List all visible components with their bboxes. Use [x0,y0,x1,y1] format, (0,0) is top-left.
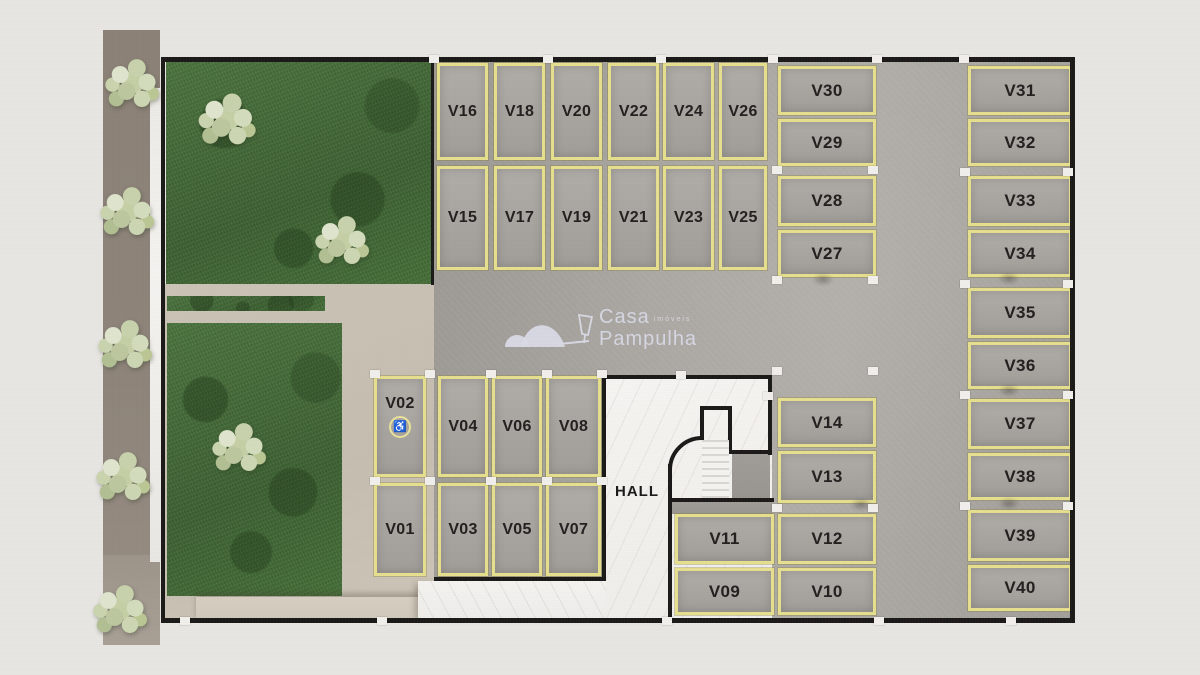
brand-name-line2: Pampulha [599,329,697,349]
stall-label: V02 [385,395,414,413]
stall-label: V14 [811,413,842,433]
stall-label: V12 [811,529,842,549]
parking-stall-v15: V15 [437,166,488,270]
parking-stall-v03: V03 [438,483,488,576]
parking-stall-v26: V26 [719,63,767,160]
shadow [998,497,1020,510]
parking-stall-v39: V39 [968,510,1072,561]
tree-icon [194,88,262,156]
brand-logo-text: Casaimóveis Pampulha [599,307,697,349]
stall-label: V18 [505,103,534,121]
parking-stall-v38: V38 [968,453,1072,500]
stall-label: V39 [1004,526,1035,546]
stall-label: V28 [811,191,842,211]
stall-label: V19 [562,209,591,227]
pillar [1063,280,1073,288]
pillar [772,276,782,284]
stall-label: V36 [1004,356,1035,376]
pillar [772,166,782,174]
shadow [998,272,1020,285]
pillar [597,370,607,378]
stall-label: V27 [811,244,842,264]
pillar [543,55,553,63]
pillar [486,477,496,485]
tree-icon [89,580,153,644]
pillar [542,370,552,378]
hedge-strip [167,296,325,311]
pillar [662,617,672,625]
shadow [812,273,834,286]
parking-stall-v21: V21 [608,166,659,270]
pillar [370,477,380,485]
parking-stall-v28: V28 [778,176,876,226]
stall-label: V23 [674,209,703,227]
stall-label: V21 [619,209,648,227]
stall-label: V40 [1004,578,1035,598]
stall-label: V08 [559,418,588,436]
stall-label: V13 [811,467,842,487]
shadow [998,384,1020,397]
parking-stall-v25: V25 [719,166,767,270]
stall-label: V11 [709,529,739,549]
pillar [868,276,878,284]
parking-stall-v23: V23 [663,166,714,270]
stall-label: V17 [505,209,534,227]
parking-stall-v27: V27 [778,230,876,277]
pillar [872,55,882,63]
pillar [425,370,435,378]
parking-stall-v01: V01 [374,483,426,576]
tree-icon [311,211,375,275]
parking-stall-v10: V10 [778,568,876,615]
wall-left [161,57,165,618]
parking-stall-v12: V12 [778,514,876,564]
parking-stall-v02-accessible: V02 ♿ [374,376,426,477]
pillar [960,280,970,288]
pillar [868,166,878,174]
stall-label: V37 [1004,414,1035,434]
pillar [1063,502,1073,510]
pillar [1006,617,1016,625]
wall-hall-right [768,375,772,455]
stall-label: V16 [448,103,477,121]
parking-stall-v24: V24 [663,63,714,160]
parking-stall-v34: V34 [968,230,1072,277]
pillar [868,367,878,375]
stall-label: V15 [448,209,477,227]
parking-stall-v31: V31 [968,66,1072,115]
parking-stall-v37: V37 [968,399,1072,449]
stall-label: V09 [709,582,740,602]
parking-stall-v13: V13 [778,451,876,503]
stall-label: V35 [1004,303,1035,323]
pillar [1063,168,1073,176]
pampulha-hills-icon [503,307,595,355]
pillar [425,477,435,485]
stall-label: V04 [448,418,477,436]
parking-stall-v04: V04 [438,376,488,477]
wall-top [163,57,1073,62]
pillar [772,367,782,375]
stall-label: V06 [502,418,531,436]
stall-label: V05 [502,521,531,539]
parking-stall-v09: V09 [675,568,774,615]
parking-stall-v17: V17 [494,166,545,270]
stall-label: V31 [1004,81,1035,101]
parking-stall-v19: V19 [551,166,602,270]
stall-label: V22 [619,103,648,121]
brand-name-line1: Casa [599,306,650,328]
stall-label: V03 [448,521,477,539]
parking-stall-v18: V18 [494,63,545,160]
pillar [960,391,970,399]
pillar [763,392,773,400]
hall-label: HALL [604,483,670,500]
pillar [772,504,782,512]
pillar [960,168,970,176]
tree-icon [96,182,160,246]
brand-logo: Casaimóveis Pampulha [503,299,713,365]
wall-v11-left [668,502,672,622]
tree-icon [92,447,156,511]
pillar [180,617,190,625]
wall-bottom [161,618,1075,623]
parking-stall-v40: V40 [968,565,1072,611]
stall-label: V07 [559,521,588,539]
pillar [959,55,969,63]
parking-stall-v14: V14 [778,398,876,447]
stall-label: V38 [1004,467,1035,487]
stall-label: V26 [728,103,757,121]
wall-right [1070,57,1075,623]
stall-label: V29 [811,133,842,153]
stall-label: V10 [811,582,842,602]
parking-stall-v32: V32 [968,119,1072,166]
parking-stall-v11: V11 [675,514,774,564]
stall-label: V25 [728,209,757,227]
parking-stall-v35: V35 [968,288,1072,338]
pillar [768,55,778,63]
wall-room-bottom [728,450,772,454]
pillar [960,502,970,510]
tree-icon [94,315,158,379]
parking-stall-v05: V05 [492,483,542,576]
tree-icon [101,54,165,118]
parking-stall-v33: V33 [968,176,1072,226]
parking-stall-v36: V36 [968,342,1072,389]
stall-label: V01 [385,521,414,539]
stall-label: V34 [1004,244,1035,264]
stall-label: V33 [1004,191,1035,211]
parking-stall-v08: V08 [546,376,601,477]
parking-stall-v22: V22 [608,63,659,160]
pillar [542,477,552,485]
pillar [868,504,878,512]
pillar [370,370,380,378]
parking-stall-v16: V16 [437,63,488,160]
pillar [676,371,686,379]
wall-hall-top [602,375,772,379]
pillar [1063,391,1073,399]
wall-under-stalls [434,577,606,581]
wheelchair-icon: ♿ [389,416,411,438]
pillar [486,370,496,378]
parking-stall-v29: V29 [778,119,876,166]
parking-stall-v06: V06 [492,376,542,477]
utility-room-floor [732,454,770,498]
parking-floor-plan: V16 V18 V20 V22 V24 V26 V15 V17 V19 V21 … [0,0,1200,675]
brand-tagline: imóveis [654,316,692,323]
stall-label: V24 [674,103,703,121]
stall-label: V30 [811,81,842,101]
pillar [429,55,439,63]
pillar [656,55,666,63]
pillar [874,617,884,625]
stall-label: V32 [1004,133,1035,153]
wall-garden-right [431,57,434,285]
parking-stall-v20: V20 [551,63,602,160]
parking-stall-v30: V30 [778,66,876,115]
tree-icon [208,418,272,482]
stall-label: V20 [562,103,591,121]
parking-stall-v07: V07 [546,483,601,576]
pillar [377,617,387,625]
